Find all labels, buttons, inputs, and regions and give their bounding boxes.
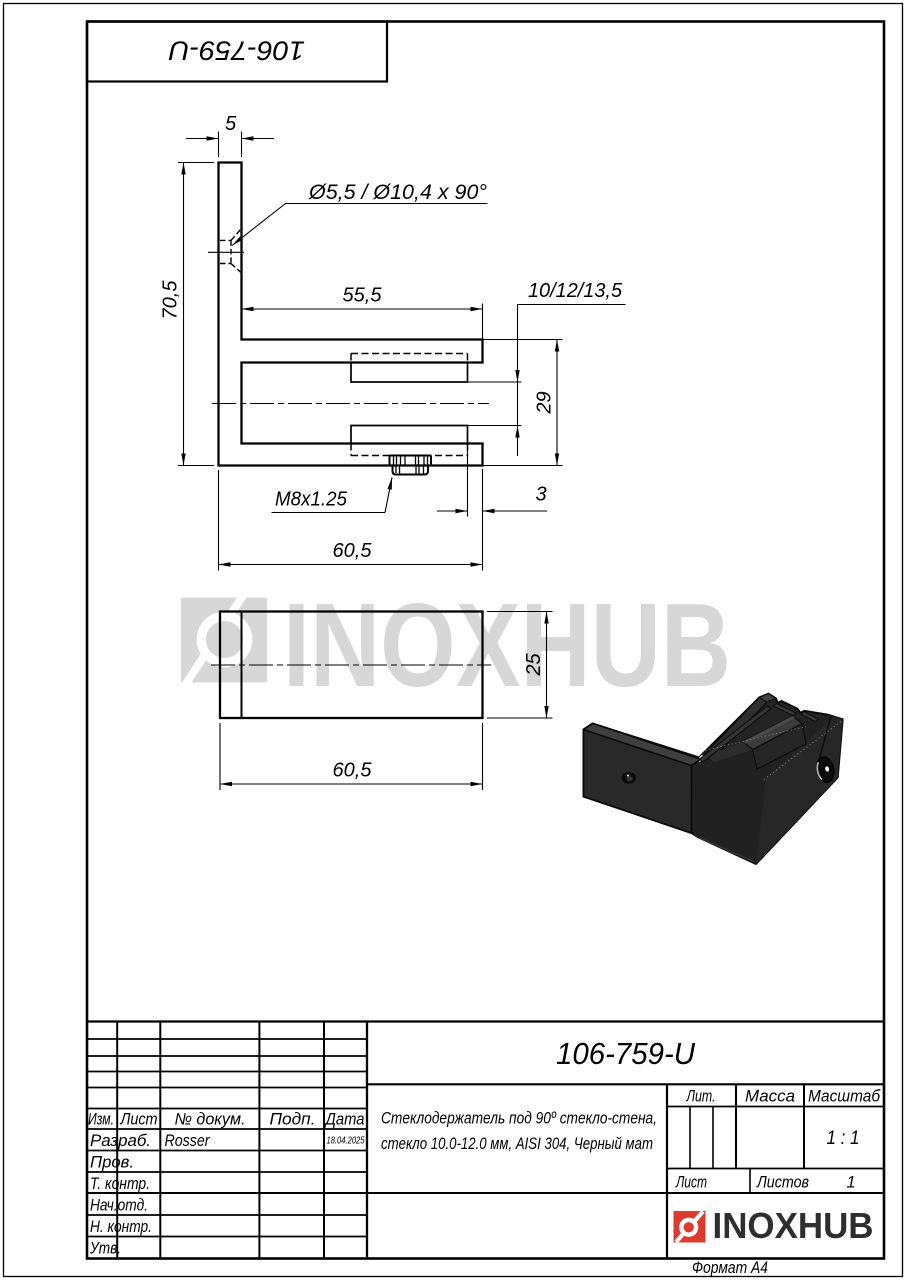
svg-text:Лит.: Лит. [686, 1088, 716, 1106]
svg-text:106-759-U: 106-759-U [556, 1036, 696, 1071]
svg-text:Изм.: Изм. [88, 1111, 114, 1129]
svg-text:Листов: Листов [756, 1174, 809, 1192]
svg-text:Н. контр.: Н. контр. [90, 1218, 152, 1236]
svg-text:18.04.2025: 18.04.2025 [327, 1135, 365, 1147]
svg-text:1 : 1: 1 : 1 [827, 1128, 860, 1149]
svg-text:55,5: 55,5 [343, 285, 383, 307]
svg-text:Rosser: Rosser [165, 1132, 211, 1150]
svg-text:Стеклодержатель под 90º стекло: Стеклодержатель под 90º стекло-стена, [381, 1109, 657, 1128]
svg-text:Ø5,5 / Ø10,4 x 90°: Ø5,5 / Ø10,4 x 90° [308, 181, 487, 204]
svg-text:Масштаб: Масштаб [808, 1088, 881, 1106]
svg-text:Подп.: Подп. [270, 1111, 316, 1129]
svg-text:Пров.: Пров. [90, 1154, 134, 1172]
svg-text:1: 1 [846, 1174, 855, 1192]
svg-text:Дата: Дата [324, 1111, 365, 1129]
svg-text:29: 29 [534, 391, 556, 414]
svg-text:60,5: 60,5 [333, 540, 373, 562]
svg-text:Нач.отд.: Нач.отд. [90, 1197, 148, 1215]
svg-text:Лист: Лист [120, 1111, 158, 1129]
svg-text:Масса: Масса [745, 1088, 795, 1106]
svg-text:стекло 10.0-12.0 мм, AISI 304,: стекло 10.0-12.0 мм, AISI 304, Черный ма… [381, 1134, 653, 1153]
svg-text:Лист: Лист [675, 1174, 707, 1192]
svg-text:INOXHUB: INOXHUB [283, 579, 731, 712]
svg-text:3: 3 [535, 484, 546, 506]
svg-text:70,5: 70,5 [160, 280, 182, 320]
svg-text:M8x1.25: M8x1.25 [275, 489, 348, 511]
svg-text:Формат А4: Формат А4 [692, 1258, 768, 1277]
svg-text:106-759-U: 106-759-U [168, 36, 305, 66]
svg-text:5: 5 [225, 113, 237, 135]
svg-text:Т. контр.: Т. контр. [90, 1175, 150, 1193]
svg-text:10/12/13,5: 10/12/13,5 [528, 280, 623, 302]
svg-text:№ докум.: № докум. [175, 1111, 246, 1129]
svg-text:60,5: 60,5 [333, 760, 373, 782]
svg-text:Разраб.: Разраб. [90, 1132, 151, 1150]
svg-text:Утв.: Утв. [89, 1240, 121, 1258]
svg-text:25: 25 [523, 653, 545, 677]
svg-text:INOXHUB: INOXHUB [713, 1205, 874, 1246]
